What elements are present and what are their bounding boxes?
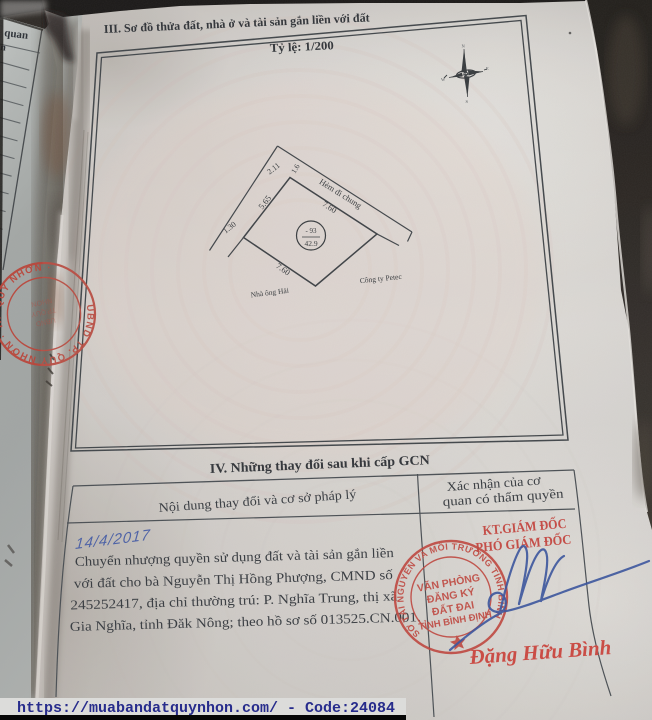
svg-text:https://muabandatquynhon.com/: https://muabandatquynhon.com/ - Code:240… (17, 700, 395, 717)
